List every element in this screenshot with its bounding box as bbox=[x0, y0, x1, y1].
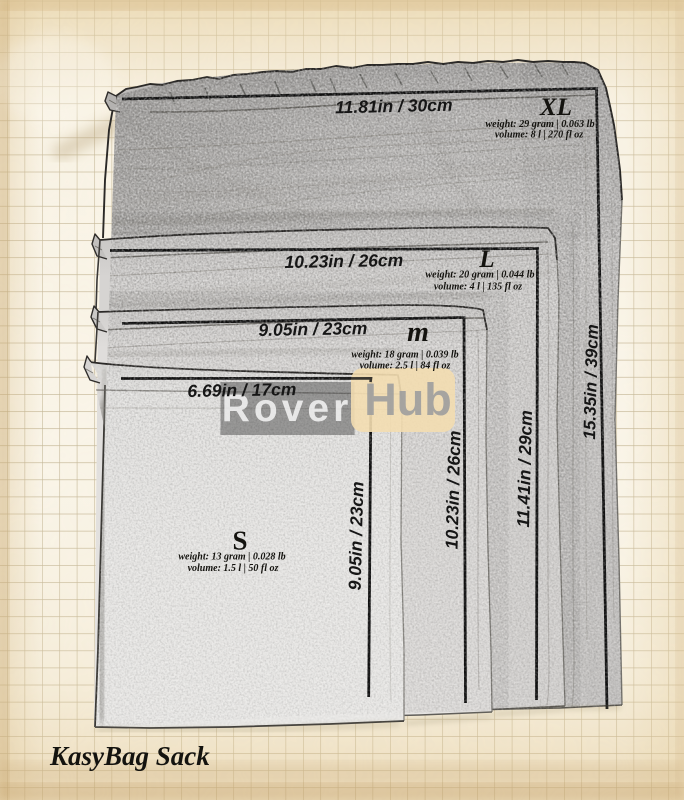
svg-text:weight: 18 gram | 0.039 lb: weight: 18 gram | 0.039 lb bbox=[351, 350, 458, 361]
svg-text:Hub: Hub bbox=[364, 374, 451, 425]
svg-text:volume: 1.5 l | 50 fl oz: volume: 1.5 l | 50 fl oz bbox=[188, 563, 279, 574]
svg-text:11.41in / 29cm: 11.41in / 29cm bbox=[513, 410, 536, 528]
svg-text:KasyBag Sack: KasyBag Sack bbox=[49, 741, 210, 771]
svg-text:weight: 20 gram | 0.044 lb: weight: 20 gram | 0.044 lb bbox=[425, 270, 534, 281]
svg-text:10.23in / 26cm: 10.23in / 26cm bbox=[441, 430, 464, 549]
svg-text:weight: 29 gram | 0.063 lb: weight: 29 gram | 0.063 lb bbox=[485, 119, 594, 130]
svg-text:10.23in / 26cm: 10.23in / 26cm bbox=[284, 250, 403, 272]
svg-text:m: m bbox=[407, 317, 429, 348]
svg-text:weight: 13 gram | 0.028 lb: weight: 13 gram | 0.028 lb bbox=[178, 552, 285, 563]
svg-text:9.05in / 23cm: 9.05in / 23cm bbox=[258, 318, 367, 340]
svg-text:15.35in / 39cm: 15.35in / 39cm bbox=[580, 324, 602, 440]
svg-text:volume: 2.5 l | 84 fl oz: volume: 2.5 l | 84 fl oz bbox=[360, 361, 451, 372]
svg-text:volume: 4 l | 135 fl oz: volume: 4 l | 135 fl oz bbox=[434, 282, 522, 293]
svg-text:XL: XL bbox=[539, 94, 572, 121]
svg-text:11.81in / 30cm: 11.81in / 30cm bbox=[335, 95, 453, 118]
svg-text:9.05in / 23cm: 9.05in / 23cm bbox=[345, 481, 368, 590]
svg-text:6.69in / 17cm: 6.69in / 17cm bbox=[187, 379, 296, 401]
svg-text:volume: 8 l | 270 fl oz: volume: 8 l | 270 fl oz bbox=[495, 130, 583, 141]
